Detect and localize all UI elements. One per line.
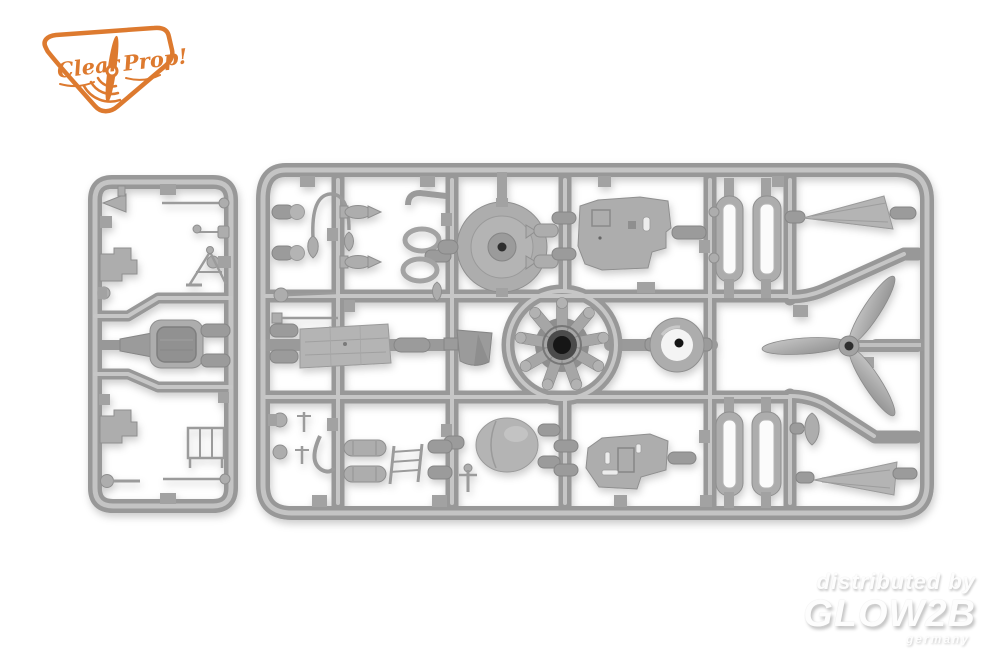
stepped-bracket-part: [100, 410, 137, 443]
bullet-plug-part: [340, 256, 381, 269]
ball-lever-part: [193, 225, 229, 238]
bullet-plug-part: [340, 206, 381, 219]
small-fitting-parts: [268, 412, 334, 472]
bench-frame-part: [188, 428, 224, 468]
gate-plug: [98, 287, 110, 299]
teardrop-fairing-part: [345, 232, 354, 251]
lower-fuselage-side-panel-part: [554, 434, 696, 489]
gate-stub: [100, 216, 112, 228]
small-sprue: [95, 182, 231, 506]
upper-fuselage-side-panel-part: [552, 197, 706, 270]
boarding-ladder-part: [390, 444, 422, 484]
pilot-seat-part: [120, 320, 230, 368]
cowl-flap-strip-parts: [709, 178, 781, 298]
large-sprue: [263, 170, 927, 513]
watermark-distributed-by: distributed by: [676, 570, 976, 593]
control-rod-part: [163, 474, 230, 484]
distributor-watermark: distributed by GLOW2B germany: [676, 570, 976, 646]
drop-tank-parts: [344, 440, 386, 482]
upper-tail-fin-part: [785, 196, 916, 229]
lower-tail-fin-part: [796, 462, 917, 495]
clearprop-logo: Clear Prop!: [30, 22, 205, 137]
rigging-rod-part: [272, 288, 338, 323]
cowl-flap-strip-parts: [716, 397, 781, 508]
t-pin-part: [459, 464, 477, 492]
radial-engine-part: [514, 298, 609, 392]
rear-cowling-egg-part: [444, 418, 560, 472]
nozzle-fitting-part: [103, 186, 126, 212]
stepped-bracket-part: [100, 248, 137, 281]
gate-plug: [207, 256, 231, 268]
watermark-brand: GLOW2B: [676, 595, 976, 635]
teardrop-fairing-part: [308, 236, 319, 258]
cowl-ring-part: [645, 318, 712, 372]
control-rod-part: [162, 198, 229, 208]
gate-plug: [272, 205, 305, 261]
product-photo: Clear Prop! distributed by GLOW2B german…: [0, 0, 1000, 667]
ball-lever-part: [101, 475, 141, 488]
